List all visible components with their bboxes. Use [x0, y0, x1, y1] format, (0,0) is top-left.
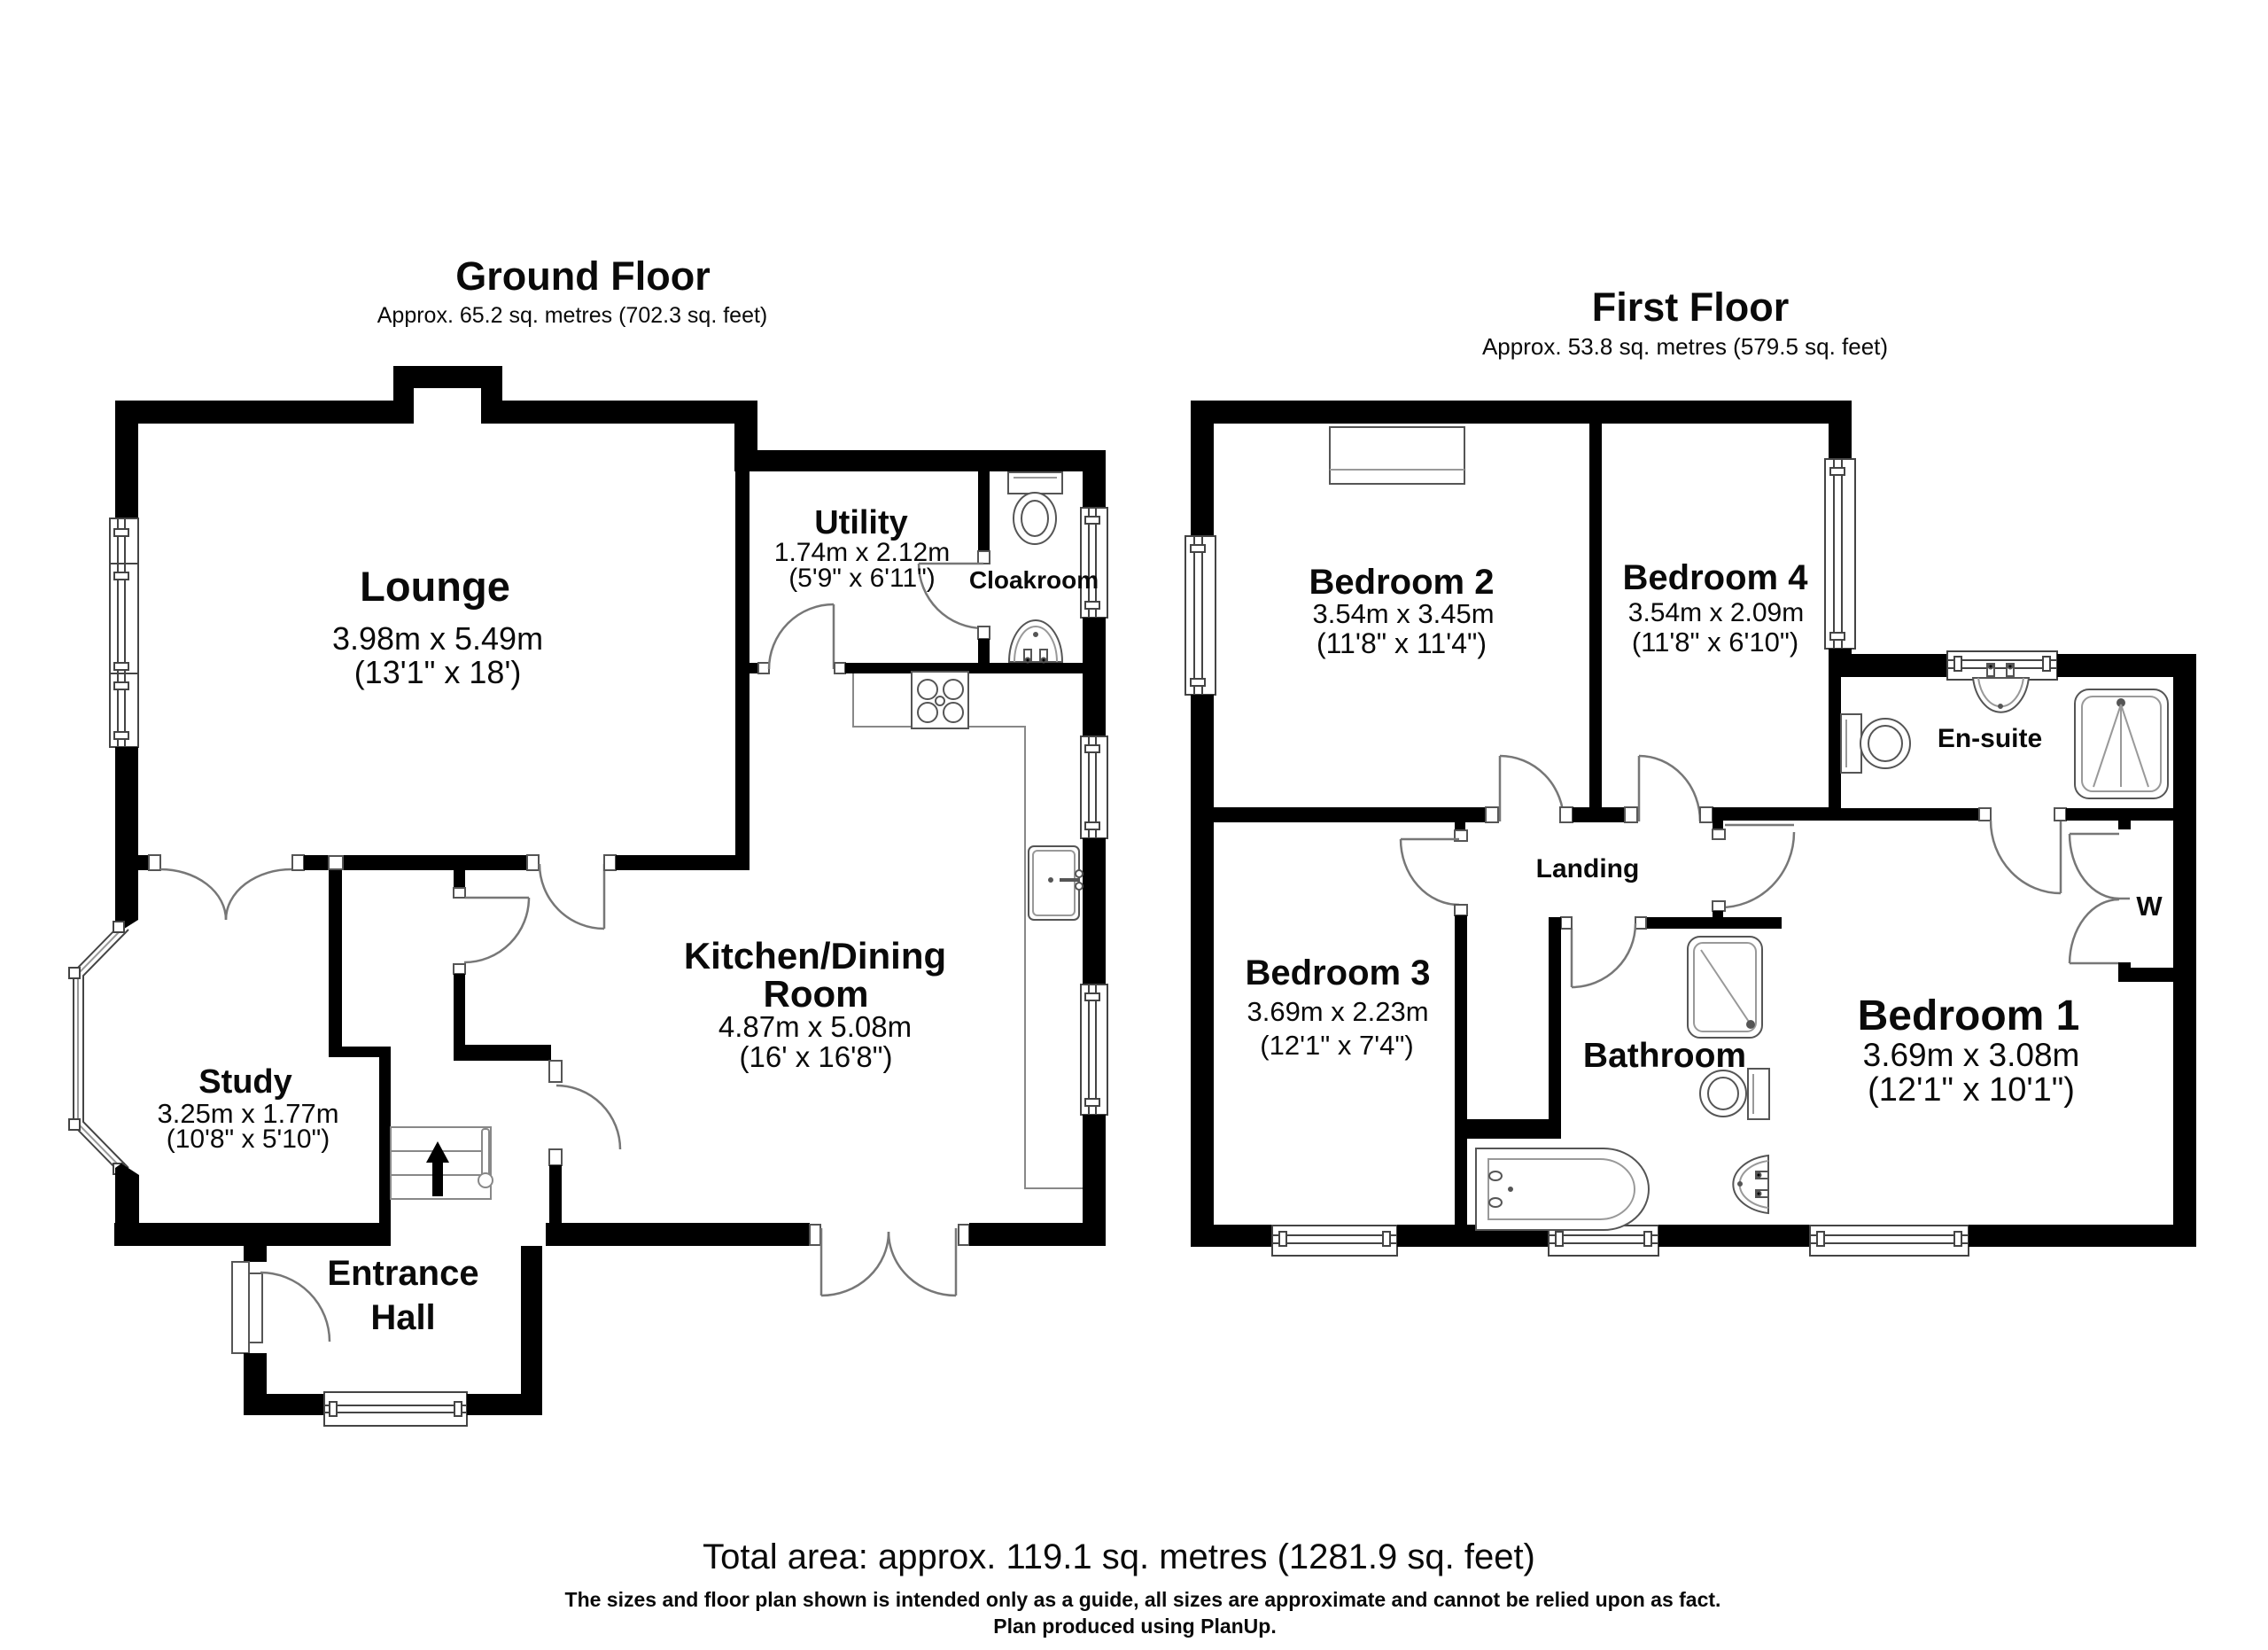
- svg-text:Study: Study: [198, 1063, 292, 1101]
- svg-text:Ground Floor: Ground Floor: [455, 253, 710, 299]
- svg-text:Total area: approx. 119.1 sq.: Total area: approx. 119.1 sq. metres (12…: [703, 1537, 1535, 1576]
- svg-text:Bedroom 2: Bedroom 2: [1309, 563, 1495, 602]
- svg-text:Hall: Hall: [370, 1298, 435, 1337]
- svg-text:Room: Room: [764, 973, 869, 1015]
- svg-text:Cloakroom: Cloakroom: [969, 566, 1099, 594]
- svg-text:3.69m x 2.23m: 3.69m x 2.23m: [1247, 996, 1428, 1027]
- svg-text:Kitchen/Dining: Kitchen/Dining: [684, 935, 946, 977]
- svg-text:Lounge: Lounge: [360, 563, 510, 610]
- svg-text:(16' x 16'8"): (16' x 16'8"): [740, 1040, 893, 1073]
- svg-text:The sizes and floor plan shown: The sizes and floor plan shown is intend…: [565, 1588, 1721, 1611]
- svg-text:(10'8" x 5'10"): (10'8" x 5'10"): [167, 1125, 330, 1154]
- svg-text:First Floor: First Floor: [1592, 284, 1790, 330]
- svg-text:W: W: [2136, 891, 2163, 922]
- svg-text:(11'8" x 11'4"): (11'8" x 11'4"): [1317, 627, 1487, 659]
- svg-text:Landing: Landing: [1536, 854, 1640, 883]
- svg-text:Plan produced using PlanUp.: Plan produced using PlanUp.: [993, 1615, 1276, 1638]
- svg-text:(12'1" x 10'1"): (12'1" x 10'1"): [1868, 1071, 2075, 1109]
- svg-text:Utility: Utility: [814, 504, 908, 541]
- svg-text:En-suite: En-suite: [1938, 724, 2042, 753]
- svg-text:(13'1" x 18'): (13'1" x 18'): [354, 654, 522, 690]
- svg-text:(12'1" x 7'4"): (12'1" x 7'4"): [1260, 1030, 1413, 1061]
- svg-text:(11'8" x 6'10"): (11'8" x 6'10"): [1632, 627, 1798, 658]
- svg-text:Bedroom 1: Bedroom 1: [1858, 992, 2080, 1039]
- svg-text:4.87m x 5.08m: 4.87m x 5.08m: [718, 1010, 912, 1043]
- svg-text:3.54m x 3.45m: 3.54m x 3.45m: [1312, 598, 1494, 629]
- svg-text:Entrance: Entrance: [327, 1254, 478, 1293]
- svg-text:3.54m x 2.09m: 3.54m x 2.09m: [1628, 598, 1804, 627]
- svg-text:Bedroom 3: Bedroom 3: [1246, 953, 1431, 992]
- svg-text:Approx. 65.2 sq. metres (702.3: Approx. 65.2 sq. metres (702.3 sq. feet): [377, 303, 768, 328]
- svg-text:(5'9" x 6'11"): (5'9" x 6'11"): [788, 564, 936, 593]
- svg-text:Approx. 53.8 sq. metres (579.5: Approx. 53.8 sq. metres (579.5 sq. feet): [1482, 333, 1888, 360]
- svg-text:Bedroom 4: Bedroom 4: [1623, 558, 1809, 597]
- svg-text:Bathroom: Bathroom: [1583, 1037, 1746, 1075]
- svg-text:3.69m x 3.08m: 3.69m x 3.08m: [1863, 1037, 2080, 1073]
- svg-text:3.98m x 5.49m: 3.98m x 5.49m: [332, 620, 543, 657]
